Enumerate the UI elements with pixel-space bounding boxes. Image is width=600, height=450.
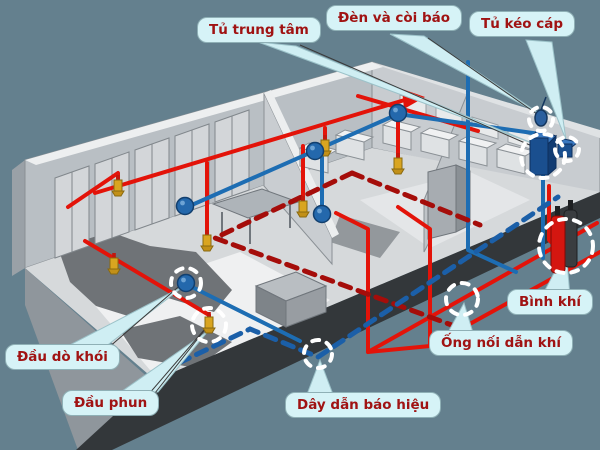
smoke-detector bbox=[307, 143, 324, 160]
callout-alarm-light-siren: Đèn và còi báo bbox=[326, 5, 462, 31]
callout-signal-wire: Dây dẫn báo hiệu bbox=[285, 392, 441, 418]
callout-gas-cylinder: Bình khí bbox=[507, 289, 593, 315]
system-diagram bbox=[0, 0, 600, 450]
smoke-detector bbox=[314, 206, 331, 223]
smoke-detector bbox=[177, 198, 194, 215]
callout-central-panel: Tủ trung tâm bbox=[197, 17, 321, 43]
smoke-detector bbox=[178, 275, 195, 292]
callout-cable-pull-box: Tủ kéo cáp bbox=[469, 11, 575, 37]
diagram-canvas: Tủ trung tâm Đèn và còi báo Tủ kéo cáp B… bbox=[0, 0, 600, 450]
callout-gas-connector-pipe: Ống nối dẫn khí bbox=[429, 330, 573, 356]
callout-spray-nozzle: Đầu phun bbox=[62, 390, 159, 416]
alarm-bell bbox=[535, 97, 547, 126]
callout-smoke-detector: Đầu dò khói bbox=[5, 344, 120, 370]
smoke-detector bbox=[390, 105, 407, 122]
